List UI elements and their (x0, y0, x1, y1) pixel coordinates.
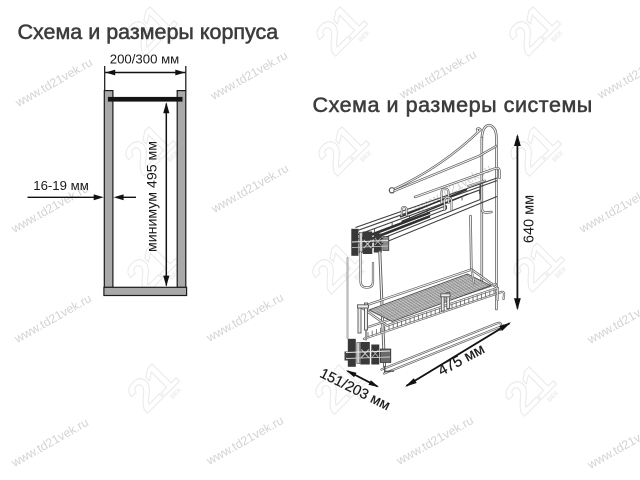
svg-text:www.td21vek.ru: www.td21vek.ru (8, 415, 91, 470)
svg-text:Схема и размеры системы: Схема и размеры системы (313, 93, 593, 117)
svg-text:21: 21 (117, 351, 187, 421)
svg-text:www.td21vek.ru: www.td21vek.ru (203, 290, 286, 345)
svg-text:www.td21vek.ru: www.td21vek.ru (12, 55, 95, 110)
svg-text:www.td21vek.ru: www.td21vek.ru (393, 413, 476, 468)
svg-text:www.td21vek.ru: www.td21vek.ru (584, 417, 640, 472)
svg-text:www.td21vek.ru: www.td21vek.ru (208, 161, 291, 216)
svg-text:640 мм: 640 мм (522, 195, 538, 243)
svg-text:www.td21vek.ru: www.td21vek.ru (203, 413, 286, 468)
svg-text:21: 21 (494, 354, 564, 424)
svg-text:www.td21vek.ru: www.td21vek.ru (584, 292, 640, 347)
svg-text:21: 21 (307, 114, 377, 184)
svg-text:200/300 мм: 200/300 мм (110, 52, 179, 67)
svg-text:21: 21 (499, 114, 569, 184)
svg-text:Схема и размеры корпуса: Схема и размеры корпуса (18, 20, 279, 44)
svg-text:475 мм: 475 мм (435, 341, 487, 380)
svg-text:16-19 мм: 16-19 мм (33, 178, 89, 193)
svg-text:минимум 495 мм: минимум 495 мм (145, 141, 161, 252)
svg-text:www.td21vek.ru: www.td21vek.ru (594, 47, 640, 102)
svg-text:www.td21vek.ru: www.td21vek.ru (576, 181, 640, 236)
svg-text:www.td21vek.ru: www.td21vek.ru (11, 291, 94, 346)
svg-text:www.td21vek.ru: www.td21vek.ru (207, 48, 290, 103)
